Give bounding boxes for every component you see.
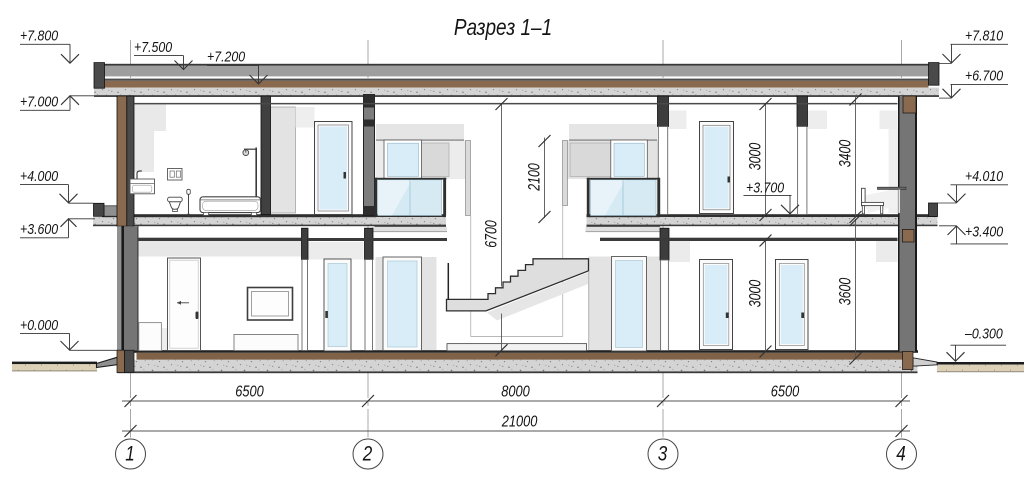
svg-text:3000: 3000: [747, 143, 765, 170]
svg-text:3000: 3000: [747, 280, 765, 307]
svg-text:8000: 8000: [501, 383, 530, 401]
svg-text:–0.300: –0.300: [964, 325, 1003, 341]
svg-text:6500: 6500: [771, 383, 800, 401]
svg-text:+3.400: +3.400: [965, 223, 1003, 239]
svg-text:3600: 3600: [837, 278, 855, 305]
svg-text:6700: 6700: [483, 220, 501, 247]
svg-text:+7.000: +7.000: [20, 93, 58, 109]
svg-text:+7.500: +7.500: [134, 39, 172, 55]
svg-text:2100: 2100: [526, 163, 544, 191]
svg-text:+7.800: +7.800: [20, 27, 58, 43]
svg-text:+4.010: +4.010: [965, 168, 1003, 184]
svg-text:21000: 21000: [501, 413, 538, 431]
svg-text:3: 3: [658, 443, 668, 466]
svg-text:4: 4: [896, 443, 906, 466]
svg-text:+7.810: +7.810: [965, 27, 1003, 43]
svg-text:+3.600: +3.600: [20, 221, 58, 237]
svg-text:Разрез 1–1: Разрез 1–1: [454, 15, 552, 40]
svg-text:1: 1: [125, 443, 135, 466]
svg-text:3400: 3400: [837, 140, 855, 167]
svg-text:+0.000: +0.000: [20, 317, 58, 333]
svg-text:6500: 6500: [235, 383, 264, 401]
svg-text:+3.700: +3.700: [746, 179, 784, 195]
svg-text:+6.700: +6.700: [965, 67, 1003, 83]
svg-text:+7.200: +7.200: [207, 48, 245, 64]
svg-text:2: 2: [362, 443, 373, 466]
svg-text:+4.000: +4.000: [20, 168, 58, 184]
